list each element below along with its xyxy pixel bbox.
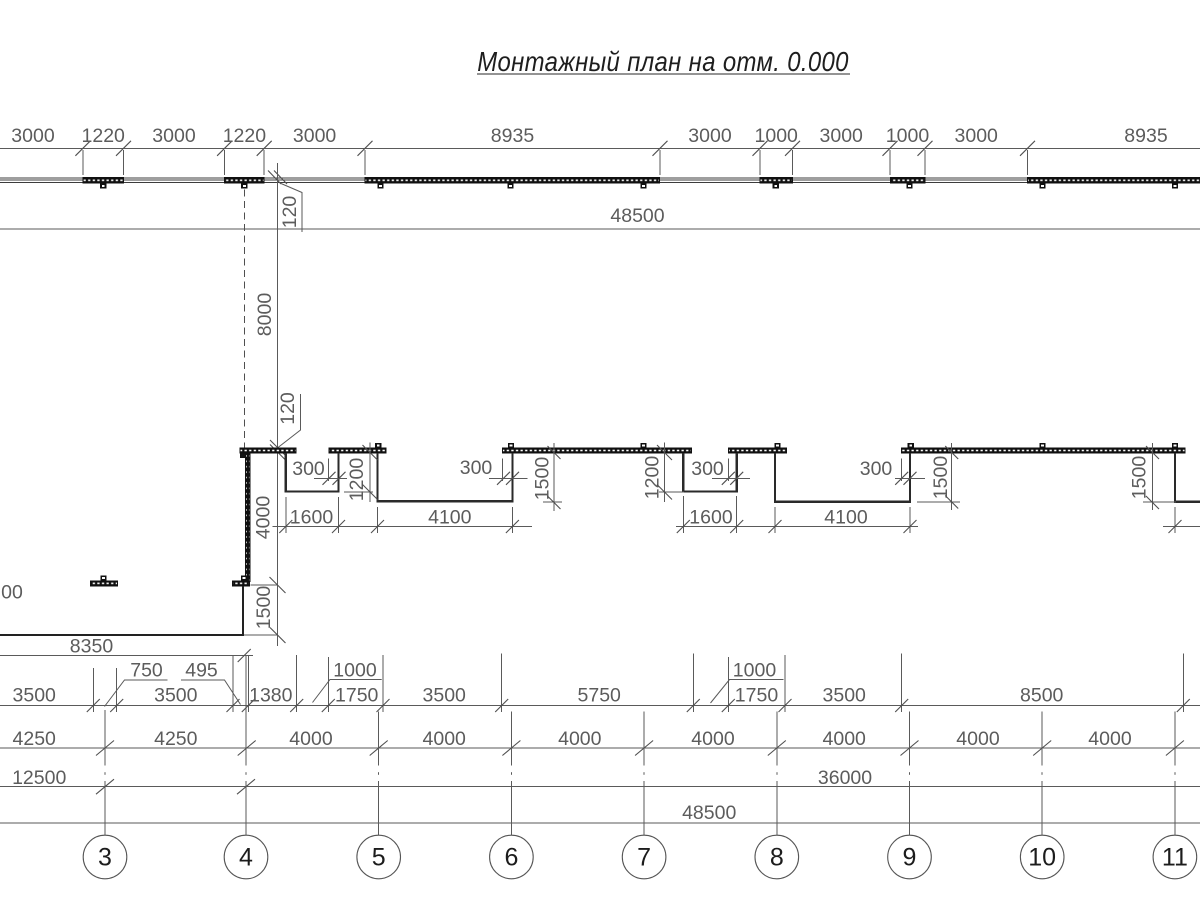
- svg-text:120: 120: [279, 196, 301, 229]
- svg-text:4250: 4250: [13, 728, 57, 750]
- svg-text:3000: 3000: [293, 125, 337, 147]
- svg-text:1750: 1750: [735, 685, 779, 707]
- svg-text:1220: 1220: [82, 125, 126, 147]
- svg-text:4100: 4100: [824, 507, 868, 529]
- svg-text:300: 300: [691, 458, 724, 480]
- svg-text:4100: 4100: [428, 507, 472, 529]
- svg-text:48500: 48500: [610, 205, 664, 227]
- svg-text:9: 9: [903, 844, 917, 872]
- svg-text:1000: 1000: [733, 660, 777, 682]
- svg-text:3000: 3000: [955, 125, 999, 147]
- svg-text:4: 4: [239, 844, 253, 872]
- svg-text:48500: 48500: [682, 802, 736, 824]
- svg-text:1200: 1200: [642, 456, 664, 500]
- svg-text:12500: 12500: [12, 767, 66, 789]
- svg-text:8935: 8935: [1124, 125, 1168, 147]
- svg-text:10: 10: [1028, 844, 1056, 872]
- svg-text:3000: 3000: [11, 125, 55, 147]
- svg-text:8350: 8350: [70, 636, 114, 658]
- svg-text:3000: 3000: [688, 125, 732, 147]
- svg-text:4000: 4000: [558, 728, 602, 750]
- svg-text:4000: 4000: [289, 728, 333, 750]
- svg-text:00: 00: [1, 582, 23, 604]
- svg-text:5: 5: [372, 844, 386, 872]
- svg-text:11: 11: [1162, 844, 1188, 872]
- svg-text:8000: 8000: [254, 293, 276, 337]
- svg-text:1500: 1500: [1129, 456, 1151, 500]
- svg-text:1500: 1500: [930, 456, 952, 500]
- svg-text:4000: 4000: [691, 728, 735, 750]
- svg-text:4000: 4000: [423, 728, 467, 750]
- svg-text:3500: 3500: [823, 685, 867, 707]
- svg-text:1200: 1200: [346, 458, 368, 502]
- svg-text:3500: 3500: [154, 685, 198, 707]
- svg-text:7: 7: [637, 844, 651, 872]
- svg-text:495: 495: [185, 660, 218, 682]
- svg-text:1000: 1000: [755, 125, 799, 147]
- svg-text:1500: 1500: [532, 457, 554, 501]
- svg-text:120: 120: [277, 392, 299, 425]
- svg-text:3: 3: [98, 844, 112, 872]
- svg-text:1500: 1500: [253, 586, 275, 630]
- svg-text:8: 8: [770, 844, 784, 872]
- svg-text:8500: 8500: [1020, 685, 1064, 707]
- svg-text:36000: 36000: [818, 767, 872, 789]
- svg-text:3500: 3500: [13, 685, 57, 707]
- svg-text:1600: 1600: [689, 507, 733, 529]
- svg-text:4000: 4000: [1088, 728, 1132, 750]
- svg-text:1000: 1000: [886, 125, 930, 147]
- svg-text:4000: 4000: [956, 728, 1000, 750]
- svg-text:3000: 3000: [152, 125, 196, 147]
- svg-text:1000: 1000: [333, 660, 377, 682]
- svg-text:4000: 4000: [253, 496, 275, 540]
- svg-text:750: 750: [130, 660, 163, 682]
- svg-text:3500: 3500: [423, 685, 467, 707]
- svg-text:3000: 3000: [820, 125, 864, 147]
- svg-text:5750: 5750: [578, 685, 622, 707]
- svg-text:8935: 8935: [491, 125, 535, 147]
- svg-text:1750: 1750: [335, 685, 379, 707]
- svg-text:4000: 4000: [823, 728, 867, 750]
- svg-text:1220: 1220: [223, 125, 267, 147]
- svg-text:300: 300: [292, 458, 325, 480]
- svg-text:300: 300: [860, 458, 893, 480]
- svg-text:6: 6: [504, 844, 518, 872]
- svg-text:1600: 1600: [290, 507, 334, 529]
- svg-text:4250: 4250: [154, 728, 198, 750]
- svg-text:1380: 1380: [249, 685, 293, 707]
- svg-text:Монтажный план на отм. 0.000: Монтажный план на отм. 0.000: [477, 48, 849, 78]
- svg-text:300: 300: [460, 457, 493, 479]
